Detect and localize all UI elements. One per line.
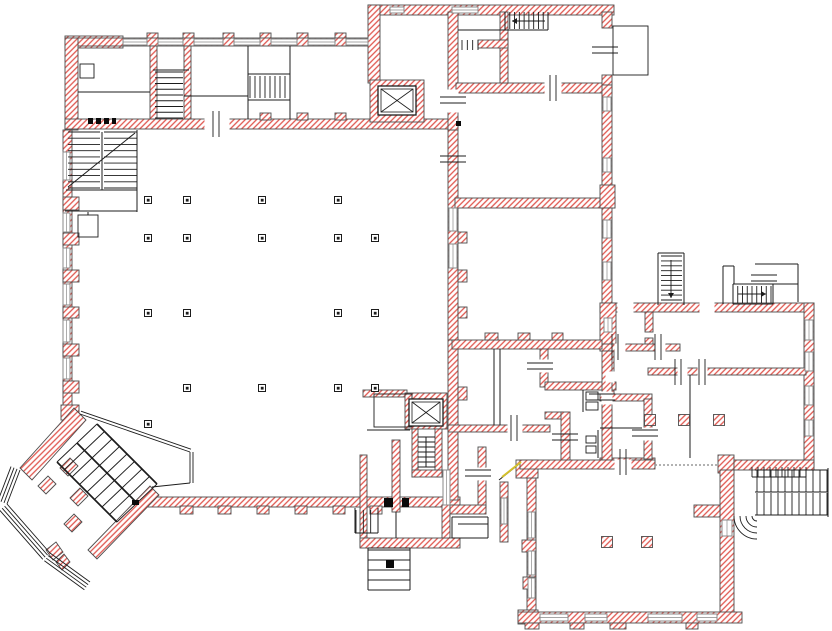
wall-segment	[63, 307, 79, 318]
wall-segment	[368, 5, 380, 83]
door-opening	[644, 428, 653, 441]
wall-segment	[370, 506, 382, 514]
wall-segment	[392, 440, 400, 512]
wall-segment	[63, 381, 79, 393]
wall-segment	[333, 506, 345, 514]
wall-segment	[552, 333, 563, 340]
door-opening	[545, 83, 562, 94]
column-marker-core	[337, 199, 340, 202]
wall-segment	[297, 113, 308, 120]
column-marker-core	[337, 237, 340, 240]
wall-segment	[478, 40, 508, 48]
wall-segment	[150, 46, 157, 119]
wall-segment	[260, 113, 271, 120]
black-marker	[386, 560, 394, 568]
column-marker-core	[186, 237, 189, 240]
door-opening	[615, 460, 632, 470]
wall-segment	[485, 333, 498, 340]
column-marker-core	[186, 312, 189, 315]
wall-segment	[63, 233, 79, 245]
wall-segment	[520, 460, 655, 469]
pink-column	[602, 537, 613, 548]
wall-segment	[63, 270, 79, 282]
wall-segment	[257, 506, 269, 514]
wall-segment	[363, 390, 407, 397]
door-opening	[448, 90, 459, 113]
column-marker-core	[186, 199, 189, 202]
column-marker-core	[147, 312, 150, 315]
wall-segment	[600, 185, 615, 208]
column-marker-core	[147, 423, 150, 426]
black-marker	[88, 118, 93, 124]
wall-segment	[148, 497, 460, 507]
wall-segment	[645, 312, 653, 332]
wall-segment	[518, 333, 530, 340]
column-marker-core	[337, 312, 340, 315]
wall-segment	[448, 130, 458, 340]
door-opening	[602, 392, 613, 405]
wall-segment	[525, 623, 539, 629]
wall-segment	[602, 351, 612, 460]
wall-segment	[452, 340, 602, 349]
black-marker	[96, 118, 101, 124]
column-marker-core	[186, 387, 189, 390]
wall-segment	[648, 368, 806, 375]
column-marker-core	[147, 237, 150, 240]
door-opening	[618, 303, 634, 313]
column-marker-core	[374, 387, 377, 390]
wall-segment	[458, 232, 467, 243]
pink-column	[645, 415, 656, 426]
wall-segment	[368, 5, 614, 15]
column-marker-core	[374, 312, 377, 315]
wall-segment	[448, 505, 486, 514]
door-opening	[678, 368, 688, 376]
column-marker-core	[337, 387, 340, 390]
wall-segment	[184, 46, 191, 119]
wall-segment	[720, 470, 734, 620]
column-marker-core	[147, 199, 150, 202]
door-opening	[205, 119, 230, 130]
column-marker-core	[374, 237, 377, 240]
column-marker-core	[261, 387, 264, 390]
door-opening	[655, 344, 666, 352]
black-marker	[104, 118, 109, 124]
black-marker	[384, 498, 393, 507]
wall-segment	[545, 412, 563, 419]
door-opening	[478, 468, 487, 481]
door-opening	[606, 372, 615, 383]
column-marker-core	[261, 237, 264, 240]
wall-segment	[180, 506, 193, 514]
wall-segment	[442, 505, 450, 538]
wall-segment	[610, 623, 626, 629]
door-opening	[540, 360, 549, 373]
door-opening	[615, 344, 626, 352]
pink-column	[679, 415, 690, 426]
wall-segment	[602, 12, 612, 28]
wall-segment	[694, 505, 720, 517]
black-marker	[112, 118, 116, 124]
wall-segment	[686, 623, 698, 629]
wall-segment	[448, 425, 550, 432]
door-opening	[700, 303, 715, 313]
wall-segment	[63, 344, 79, 356]
black-marker	[132, 500, 139, 505]
column-marker-core	[261, 199, 264, 202]
wall-segment	[458, 307, 467, 318]
pink-column	[642, 537, 653, 548]
black-marker	[456, 121, 461, 126]
floor-plan-page	[0, 0, 832, 631]
floor-plan-canvas	[0, 0, 832, 631]
wall-segment	[455, 198, 615, 208]
wall-segment	[295, 506, 307, 514]
wall-segment	[570, 623, 584, 629]
wall-segment	[412, 470, 442, 477]
wall-segment	[561, 412, 570, 462]
wall-segment	[335, 113, 346, 120]
wall-segment	[522, 540, 536, 552]
wall-segment	[602, 75, 612, 85]
wall-segment	[458, 270, 467, 282]
door-opening	[508, 425, 523, 433]
wall-segment	[456, 83, 612, 93]
black-marker	[402, 498, 409, 507]
wall-segment	[458, 387, 467, 400]
wall-segment	[360, 538, 460, 548]
pink-column	[714, 415, 725, 426]
wall-segment	[218, 506, 231, 514]
wall-segment	[63, 197, 79, 210]
wall-segment	[734, 460, 814, 470]
wall-segment	[65, 38, 78, 130]
